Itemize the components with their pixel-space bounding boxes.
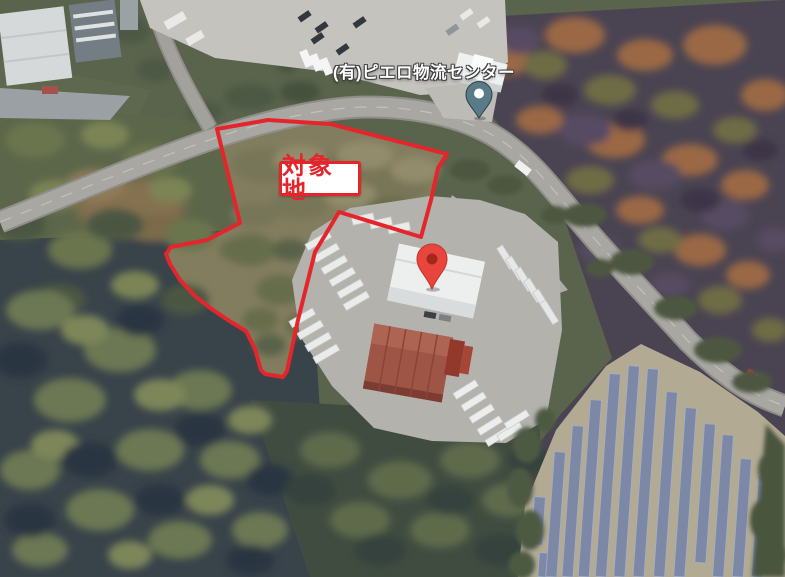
place-label[interactable]: (有)ピエロ物流センター xyxy=(333,59,515,83)
location-marker-icon[interactable] xyxy=(414,242,450,292)
place-pin-icon[interactable] xyxy=(462,80,496,122)
target-area-label: 対象地 xyxy=(279,161,361,196)
map-canvas[interactable]: (有)ピエロ物流センター 対象地 xyxy=(0,0,785,577)
target-area-outline xyxy=(0,0,785,577)
